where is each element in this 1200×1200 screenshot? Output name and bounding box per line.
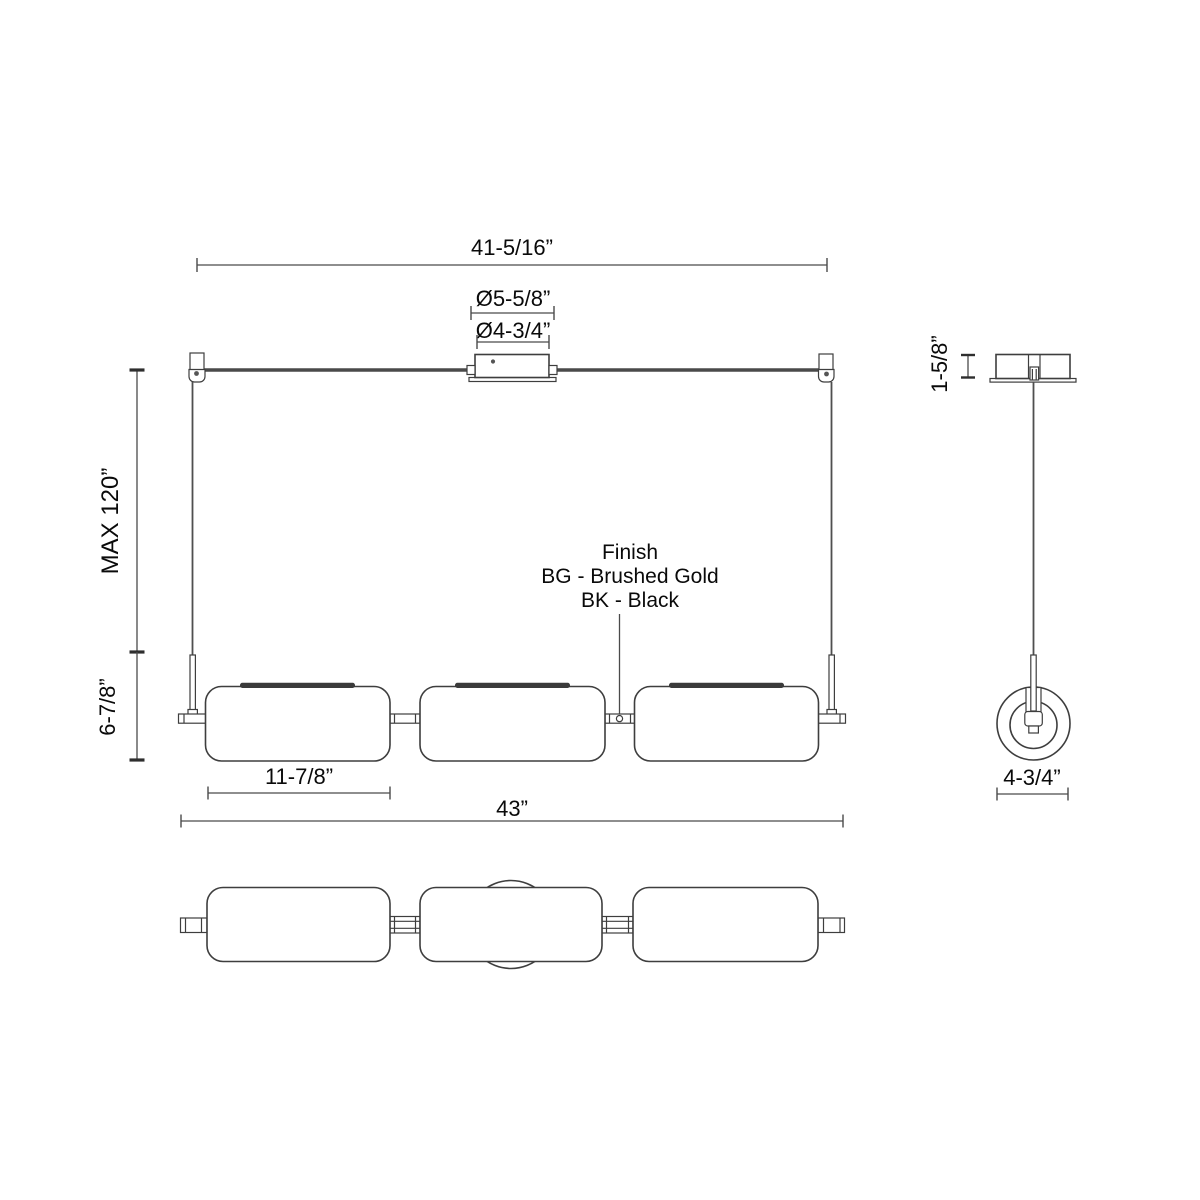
dim-canopy-height-label: 1-5/8” bbox=[927, 335, 952, 392]
dim-canopy-inner: Ø4-3/4” bbox=[476, 318, 551, 349]
dim-max-drop: MAX 120” bbox=[97, 370, 145, 652]
shade-1-plan bbox=[207, 888, 390, 962]
dim-shade-length-label: 11-7/8” bbox=[265, 764, 333, 789]
bracket-right bbox=[819, 354, 835, 382]
cable-left bbox=[188, 382, 197, 714]
connector-screw bbox=[616, 716, 622, 722]
pendant-dimension-drawing: 41-5/16” Ø5-5/8” Ø4-3/4” MAX 120” 6-7/8” bbox=[0, 0, 1200, 1200]
canopy-side bbox=[990, 355, 1076, 383]
dim-shade-diameter-label: 4-3/4” bbox=[1003, 765, 1060, 790]
shade-1-front bbox=[206, 687, 391, 762]
dim-shade-length: 11-7/8” bbox=[208, 764, 390, 800]
plan-view bbox=[181, 881, 845, 969]
shade-side-ring bbox=[997, 655, 1070, 760]
connector-1-front bbox=[390, 714, 420, 723]
dim-overall-length-label: 43” bbox=[496, 796, 528, 821]
shade-3-cap bbox=[669, 683, 784, 688]
shade-2-cap bbox=[455, 683, 570, 688]
arm-right-plan bbox=[818, 918, 845, 933]
finish-note-title: Finish bbox=[602, 541, 658, 564]
shade-1-cap bbox=[240, 683, 355, 688]
front-view: 41-5/16” Ø5-5/8” Ø4-3/4” MAX 120” 6-7/8” bbox=[95, 235, 846, 828]
finish-note-option-bk: BK - Black bbox=[581, 589, 680, 612]
dim-overall-length: 43” bbox=[181, 796, 843, 828]
bracket-left bbox=[189, 353, 205, 382]
dim-shade-diameter: 4-3/4” bbox=[997, 765, 1068, 801]
dim-max-drop-label: MAX 120” bbox=[97, 468, 124, 575]
finish-note-option-bg: BG - Brushed Gold bbox=[541, 565, 718, 588]
arm-right-front bbox=[818, 714, 846, 723]
dim-canopy-outer-label: Ø5-5/8” bbox=[476, 286, 551, 311]
stem-side bbox=[1031, 655, 1036, 711]
canopy-screw bbox=[491, 359, 495, 363]
center-fitting-tip bbox=[1029, 726, 1039, 733]
dim-canopy-height: 1-5/8” bbox=[927, 335, 975, 392]
dim-fixture-height: 6-7/8” bbox=[95, 652, 145, 760]
shade-2-plan bbox=[420, 888, 602, 962]
shade-2-front bbox=[420, 687, 605, 762]
dim-canopy-outer: Ø5-5/8” bbox=[471, 286, 554, 320]
dimension-drawing-sheet: 41-5/16” Ø5-5/8” Ø4-3/4” MAX 120” 6-7/8” bbox=[0, 0, 1200, 1200]
dim-fixture-height-label: 6-7/8” bbox=[95, 678, 120, 735]
shade-3-front bbox=[635, 687, 819, 762]
side-view: 1-5/8” 4-3/4” bbox=[927, 335, 1076, 800]
connector-2-plan bbox=[602, 917, 633, 934]
dim-suspension-span: 41-5/16” bbox=[197, 235, 827, 272]
arm-left-plan bbox=[181, 918, 208, 933]
arm-left-front bbox=[179, 714, 208, 723]
dim-canopy-inner-label: Ø4-3/4” bbox=[476, 318, 551, 343]
dim-suspension-span-label: 41-5/16” bbox=[471, 235, 553, 260]
connector-1-plan bbox=[390, 917, 420, 934]
cable-right bbox=[827, 382, 836, 714]
center-fitting bbox=[1025, 712, 1043, 727]
shade-3-plan bbox=[633, 888, 818, 962]
connector-2-front bbox=[605, 714, 635, 723]
canopy-front bbox=[467, 355, 557, 382]
